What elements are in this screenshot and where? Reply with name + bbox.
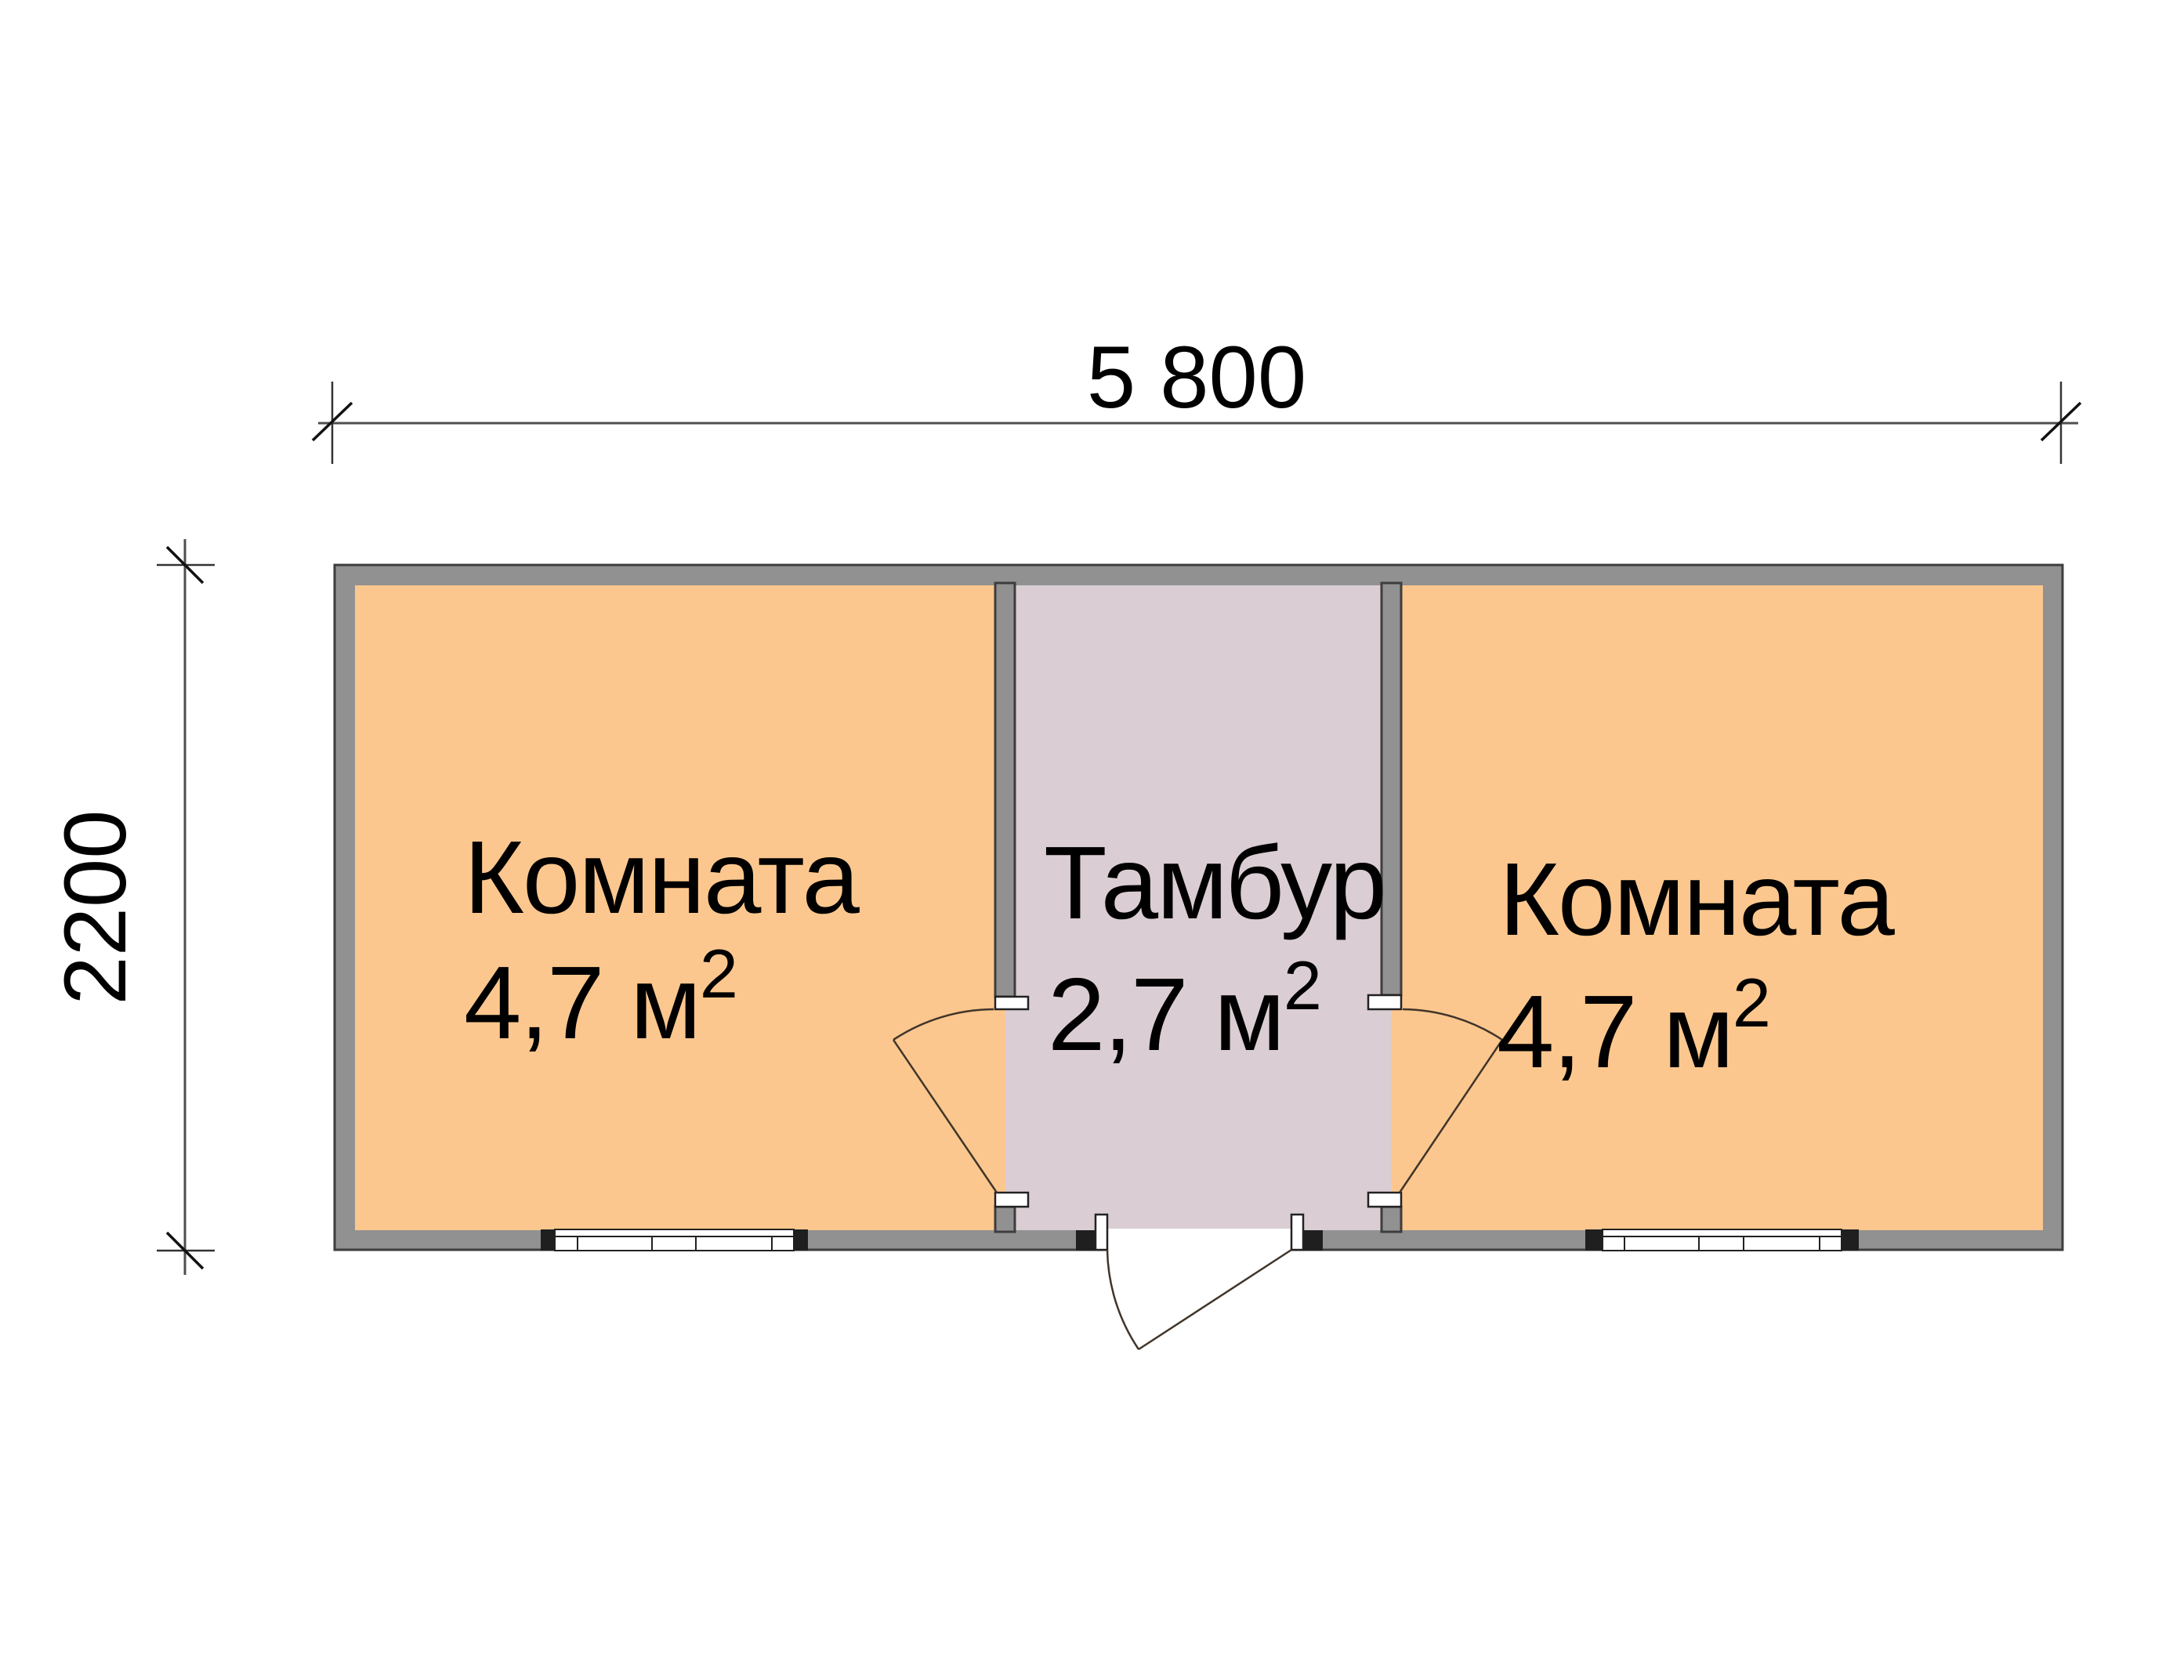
window-right-cap-b: [1842, 1229, 1859, 1251]
room-left-name: Комната: [464, 820, 860, 935]
room-right-area-sup: 2: [1733, 964, 1769, 1041]
room-right-name: Комната: [1499, 842, 1895, 957]
tambour-area: 2,7 м2: [1048, 947, 1320, 1072]
window-right: [1585, 1229, 1859, 1251]
right-door-jamb-top: [1368, 995, 1401, 1009]
entrance-jamb-right: [1291, 1215, 1303, 1250]
dimension-left: 2200: [46, 539, 215, 1275]
room-left-area: 4,7 м2: [464, 935, 737, 1060]
window-left-cap-b: [794, 1229, 808, 1251]
room-left-area-value: 4,7 м: [464, 945, 700, 1060]
window-left-frame: [555, 1229, 794, 1251]
entrance-wall-cap-right: [1303, 1230, 1323, 1251]
room-right-area: 4,7 м2: [1497, 964, 1769, 1089]
room-left-area-sup: 2: [700, 935, 737, 1012]
tambour-area-sup: 2: [1284, 947, 1320, 1024]
left-door-jamb-top: [995, 997, 1028, 1009]
window-right-frame: [1603, 1229, 1842, 1251]
tambour-area-value: 2,7 м: [1048, 957, 1284, 1072]
window-right-cap-a: [1585, 1229, 1603, 1251]
floor-plan-page: 5 800 2200: [0, 0, 2184, 1680]
entrance-opening: [1107, 1229, 1291, 1251]
entrance-door-arc: [1107, 1250, 1139, 1349]
building: Комната 4,7 м2 Тамбур 2,7 м2 Комната 4,7…: [335, 565, 2063, 1349]
entrance-wall-cap-left: [1076, 1230, 1096, 1251]
floor-plan-drawing: 5 800 2200: [0, 0, 2184, 1680]
window-left-cap-a: [541, 1229, 555, 1251]
dimension-width-label: 5 800: [1087, 328, 1306, 426]
right-door-jamb-bottom: [1368, 1193, 1401, 1207]
left-door-jamb-bottom: [995, 1193, 1028, 1207]
dimension-height-label: 2200: [46, 809, 144, 1005]
dimension-top: 5 800: [313, 328, 2081, 464]
tambour-name: Тамбур: [1044, 825, 1385, 940]
partition-right-wall-stub: [1382, 1207, 1401, 1232]
entrance-door-leaf: [1139, 1250, 1291, 1349]
room-right-area-value: 4,7 м: [1497, 974, 1733, 1089]
entrance-jamb-left: [1096, 1215, 1107, 1250]
partition-left-wall-stub: [995, 1207, 1015, 1232]
window-left: [541, 1229, 808, 1251]
partition-left-wall: [995, 583, 1015, 997]
